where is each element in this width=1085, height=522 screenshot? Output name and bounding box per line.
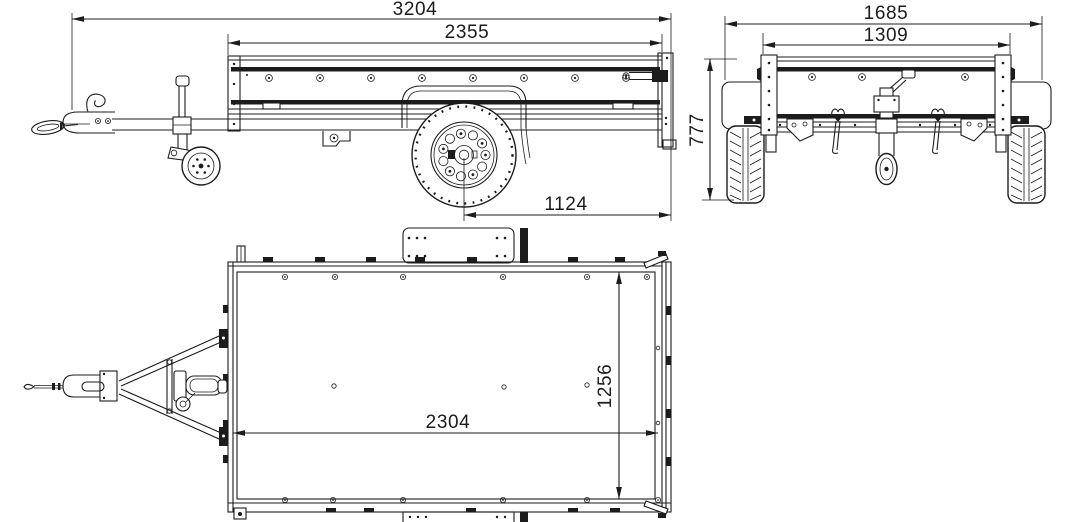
- dim-box-width: 1309: [763, 25, 1010, 54]
- floor-hole: [502, 385, 506, 389]
- hitch-coupler: [63, 94, 115, 133]
- side-road-wheel: [412, 103, 516, 221]
- side-panel-bolts: [246, 74, 629, 81]
- rear-left-wheel: [727, 126, 764, 203]
- rear-right-wheel: [1008, 126, 1045, 203]
- dim-axle-to-rear-value: 1124: [544, 194, 587, 215]
- frame-bracket: [323, 131, 350, 146]
- crank-handle: [902, 70, 915, 78]
- dim-box-length-value: 2355: [445, 22, 490, 43]
- safety-cable-loop: [31, 118, 78, 136]
- bottom-fender-box: [403, 512, 528, 522]
- dim-box-width-value: 1309: [864, 25, 909, 46]
- corner-foot-bottom-left: [234, 508, 246, 519]
- dim-inner-width: 1256: [595, 272, 619, 499]
- side-view: 3204 2355 1124: [31, 0, 676, 221]
- dim-inner-width-value: 1256: [595, 364, 616, 409]
- dim-inner-length: 2304: [233, 412, 658, 433]
- trailer-technical-drawing: 3204 2355 1124: [0, 0, 1085, 522]
- top-jockey-wheel: [174, 371, 227, 411]
- rear-view: 1685 1309 777: [687, 3, 1051, 203]
- dim-overall-width-value: 1685: [864, 3, 909, 24]
- side-rear-post: [658, 53, 676, 149]
- side-body-panel: [112, 53, 676, 149]
- dim-overall-length-value: 3204: [393, 0, 438, 20]
- right-axle-stub: [996, 133, 1006, 152]
- dim-inner-length-value: 2304: [426, 412, 471, 433]
- top-coupler: [63, 371, 117, 401]
- top-view: 2304 1256: [24, 228, 671, 522]
- coupler-handle: [87, 94, 105, 112]
- tailgate-latch: [623, 70, 668, 82]
- corner-latch-top-left: [237, 246, 245, 262]
- top-bolt-row-lower: [282, 497, 660, 502]
- left-axle-stub: [766, 133, 776, 152]
- breakaway-cable: [24, 383, 63, 390]
- drawing-sheet: 3204 2355 1124: [0, 0, 1085, 522]
- top-bolt-row-upper: [282, 274, 649, 279]
- floor-hole: [585, 383, 589, 387]
- floor-hole: [332, 384, 336, 388]
- dim-overall-length: 3204: [72, 0, 671, 221]
- dim-box-length: 2355: [228, 22, 662, 55]
- dim-overall-height-value: 777: [687, 113, 708, 147]
